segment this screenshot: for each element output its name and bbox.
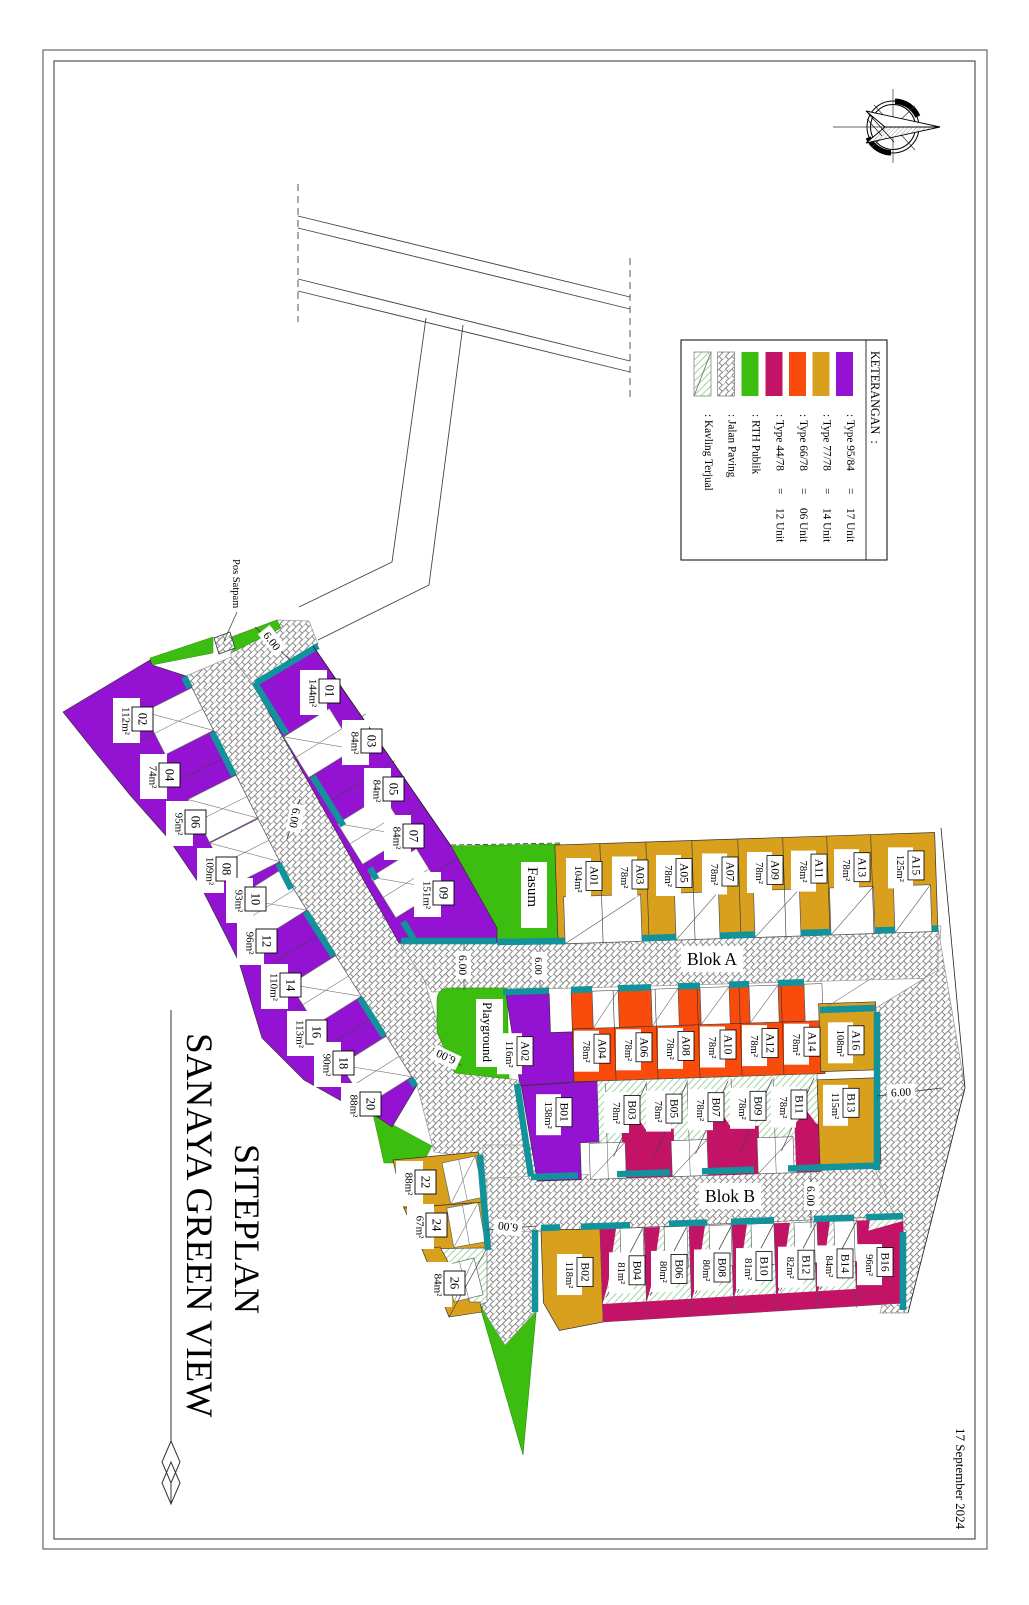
svg-text:78m²: 78m² (748, 1035, 759, 1057)
svg-text:6.00: 6.00 (804, 1186, 816, 1206)
svg-text:: Kavling Terjual: : Kavling Terjual (702, 414, 714, 491)
svg-text:A08: A08 (679, 1036, 691, 1056)
svg-text:A14: A14 (805, 1032, 817, 1052)
svg-text:B13: B13 (844, 1093, 856, 1112)
svg-text:07: 07 (406, 830, 420, 843)
svg-text:A15: A15 (909, 855, 921, 875)
svg-text:=: = (821, 488, 833, 494)
svg-text:Pos Satpam: Pos Satpam (230, 559, 241, 608)
svg-text:Blok B: Blok B (705, 1186, 755, 1206)
svg-text:A12: A12 (763, 1033, 775, 1053)
svg-text:SITEPLAN: SITEPLAN (227, 1144, 267, 1314)
svg-text:88m²: 88m² (348, 1095, 360, 1119)
svg-text:78m²: 78m² (777, 1097, 788, 1119)
svg-text:=: = (844, 488, 856, 494)
svg-text:Playground: Playground (480, 1002, 495, 1062)
svg-text:118m²: 118m² (563, 1262, 574, 1289)
svg-text:93m²: 93m² (233, 890, 245, 914)
svg-text:12: 12 (259, 935, 273, 948)
svg-text:96m²: 96m² (863, 1254, 874, 1276)
svg-text:78m²: 78m² (662, 865, 673, 887)
svg-text:110m²: 110m² (268, 973, 280, 1002)
svg-text:B11: B11 (792, 1095, 804, 1114)
svg-text:80m²: 80m² (700, 1260, 711, 1282)
svg-text:84m²: 84m² (391, 827, 403, 851)
svg-text:06: 06 (188, 816, 202, 829)
svg-text:78m²: 78m² (736, 1098, 747, 1120)
svg-text:: Type 95/84: : Type 95/84 (844, 414, 856, 471)
svg-text:04: 04 (162, 769, 176, 782)
svg-text:78m²: 78m² (753, 862, 764, 884)
svg-text:138m²: 138m² (542, 1102, 553, 1129)
svg-text:A10: A10 (721, 1035, 733, 1055)
svg-text:A02: A02 (518, 1041, 530, 1061)
svg-text:78m²: 78m² (664, 1038, 675, 1060)
svg-text:A16: A16 (849, 1030, 861, 1050)
svg-text:6.00: 6.00 (891, 1086, 912, 1099)
svg-text:6.00: 6.00 (497, 1219, 519, 1233)
svg-text:: Type 77/78: : Type 77/78 (821, 414, 833, 471)
svg-text:B02: B02 (578, 1262, 590, 1281)
svg-text:B08: B08 (715, 1258, 727, 1277)
svg-text:78m²: 78m² (580, 1041, 591, 1063)
svg-text:B04: B04 (630, 1261, 642, 1280)
svg-text:A06: A06 (637, 1037, 649, 1057)
svg-text:6.00: 6.00 (532, 957, 543, 975)
svg-text:78m²: 78m² (706, 1037, 717, 1059)
svg-text:20: 20 (363, 1098, 377, 1111)
svg-text:06 Unit: 06 Unit (797, 508, 809, 543)
svg-text:A01: A01 (587, 866, 599, 886)
svg-text:78m²: 78m² (840, 859, 851, 881)
svg-text:B10: B10 (757, 1257, 769, 1276)
svg-text:: Type 66/78: : Type 66/78 (797, 414, 809, 471)
svg-text:09: 09 (436, 887, 450, 900)
svg-text:78m²: 78m² (797, 861, 808, 883)
svg-text:67m²: 67m² (414, 1216, 426, 1240)
svg-text:B07: B07 (709, 1098, 721, 1117)
svg-text:81m²: 81m² (742, 1258, 753, 1280)
svg-text:02: 02 (135, 713, 149, 726)
svg-text:144m²: 144m² (307, 679, 319, 708)
svg-text:Blok A: Blok A (687, 949, 737, 969)
svg-text:17 September 2024: 17 September 2024 (953, 1428, 968, 1530)
svg-text:17 Unit: 17 Unit (844, 508, 856, 543)
svg-text:B05: B05 (667, 1099, 679, 1118)
svg-text:=: = (797, 488, 809, 494)
svg-text:84m²: 84m² (823, 1255, 834, 1277)
svg-text:88m²: 88m² (403, 1173, 415, 1197)
svg-text:6.00: 6.00 (456, 955, 468, 975)
svg-text:74m²: 74m² (147, 766, 159, 790)
svg-text:108m²: 108m² (834, 1030, 845, 1057)
svg-text:78m²: 78m² (790, 1034, 801, 1056)
svg-text:B03: B03 (625, 1100, 637, 1119)
svg-text:SANAYA GREEN VIEW: SANAYA GREEN VIEW (178, 1033, 219, 1418)
svg-text:B16: B16 (878, 1253, 890, 1272)
svg-text:78m²: 78m² (618, 867, 629, 889)
svg-text:A09: A09 (768, 860, 780, 880)
svg-text:151m²: 151m² (421, 881, 433, 910)
svg-text:B06: B06 (672, 1259, 684, 1278)
svg-text:104m²: 104m² (572, 865, 583, 892)
svg-text:14 Unit: 14 Unit (821, 508, 833, 543)
svg-text:112m²: 112m² (120, 707, 132, 736)
svg-text:24: 24 (429, 1219, 443, 1232)
svg-text:16: 16 (309, 1026, 323, 1039)
svg-text:08: 08 (219, 863, 233, 876)
svg-text:12 Unit: 12 Unit (774, 508, 786, 543)
svg-text:116m²: 116m² (503, 1041, 514, 1068)
svg-text:B14: B14 (838, 1254, 850, 1273)
svg-text:A13: A13 (855, 857, 867, 877)
svg-text:26: 26 (447, 1277, 461, 1290)
svg-text:01: 01 (322, 685, 336, 698)
svg-text:109m²: 109m² (204, 857, 216, 886)
svg-text:B01: B01 (557, 1103, 569, 1122)
svg-text:B09: B09 (751, 1096, 763, 1115)
svg-text:A05: A05 (677, 863, 689, 883)
svg-text:78m²: 78m² (622, 1039, 633, 1061)
svg-text:Fasum: Fasum (524, 867, 540, 907)
svg-text:A04: A04 (595, 1039, 607, 1059)
svg-text:90m²: 90m² (321, 1054, 333, 1078)
svg-text:78m²: 78m² (610, 1102, 621, 1124)
svg-text:84m²: 84m² (432, 1274, 444, 1298)
svg-text:84m²: 84m² (371, 780, 383, 804)
svg-text:78m²: 78m² (694, 1099, 705, 1121)
svg-text:125m²: 125m² (894, 855, 905, 882)
svg-text:14: 14 (283, 979, 297, 992)
svg-text:84m²: 84m² (349, 732, 361, 756)
svg-text:80m²: 80m² (657, 1261, 668, 1283)
svg-text:A11: A11 (812, 859, 824, 879)
svg-text:115m²: 115m² (829, 1092, 840, 1119)
svg-text:10: 10 (248, 893, 262, 906)
svg-text:B12: B12 (799, 1255, 811, 1274)
svg-text:: RTH Publik: : RTH Publik (750, 414, 762, 475)
svg-text:18: 18 (336, 1057, 350, 1070)
svg-text:82m²: 82m² (784, 1257, 795, 1279)
svg-text:: Type 44/78: : Type 44/78 (774, 414, 786, 471)
svg-text:=: = (774, 488, 786, 494)
svg-text:22: 22 (418, 1176, 432, 1189)
svg-text:113m²: 113m² (294, 1020, 306, 1049)
svg-text:KETERANGAN :: KETERANGAN : (868, 351, 882, 444)
svg-text:: Jalan Paving: : Jalan Paving (726, 414, 738, 478)
svg-text:03: 03 (364, 735, 378, 748)
svg-text:78m²: 78m² (652, 1101, 663, 1123)
svg-text:95m²: 95m² (173, 813, 185, 837)
svg-text:81m²: 81m² (615, 1262, 626, 1284)
svg-text:05: 05 (386, 783, 400, 796)
svg-text:96m²: 96m² (244, 932, 256, 956)
svg-text:A03: A03 (633, 865, 645, 885)
svg-text:78m²: 78m² (708, 864, 719, 886)
svg-text:A07: A07 (723, 862, 735, 882)
